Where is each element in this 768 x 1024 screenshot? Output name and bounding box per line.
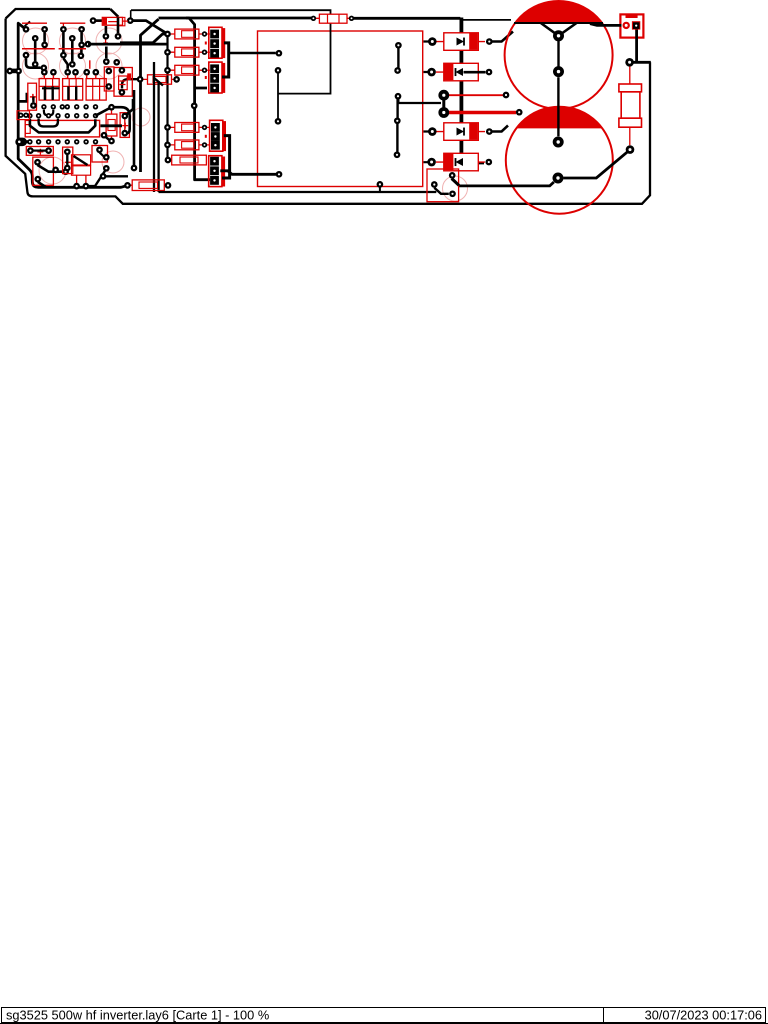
svg-text:sg3525 500w hf inverter.lay6 [: sg3525 500w hf inverter.lay6 [Carte 1] -… — [6, 1008, 269, 1023]
svg-text:30/07/2023 00:17:06: 30/07/2023 00:17:06 — [645, 1008, 762, 1023]
